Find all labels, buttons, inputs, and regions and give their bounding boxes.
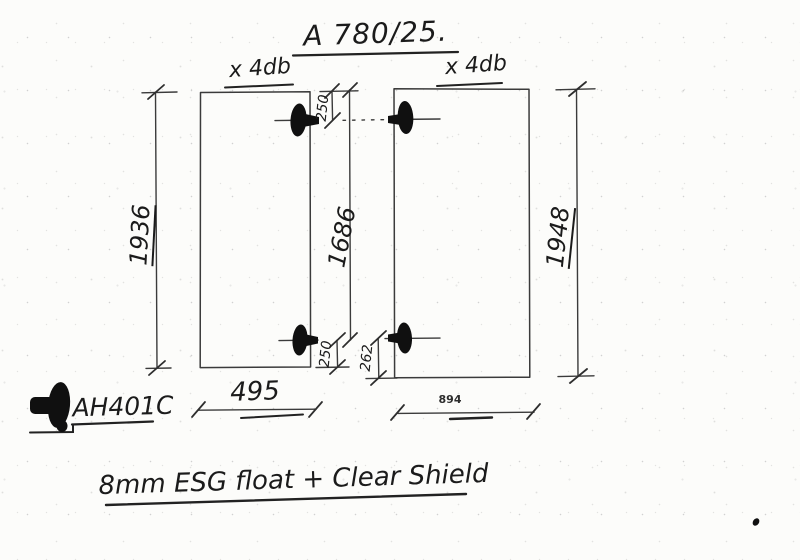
fitting-code-label: AH401C [68,389,179,424]
ext-stub [558,376,594,377]
dim-left-hole-bottom-offset: 250 [308,328,343,381]
dim-right-hole-bottom-offset: 262 [349,332,384,385]
ink-speck [751,517,761,527]
left-panel-qty-label: x 4db [217,51,303,87]
point-fixing-right-bottom-icon [388,322,413,354]
drawing-title: A 780/25. [287,14,463,54]
point-fixing-right-top-icon [388,101,414,135]
dim-right-panel-height: 1948 [532,193,585,281]
dim-894-underline [450,418,492,420]
tick [527,404,540,419]
right-panel-outline [394,89,530,378]
right-panel-qty-label: x 4db [433,48,519,84]
dim-line-894 [398,412,534,413]
qty-right-underline [437,83,502,86]
fitting-legend-icon [30,381,72,432]
dim-495-underline [241,415,303,419]
dim-right-panel-width: 894 [415,392,485,406]
ext-stub [142,92,177,93]
dim-hole-top-offset: 250 [305,82,340,135]
dim-left-panel-height: 1936 [116,192,164,278]
tick [391,405,404,420]
dim-left-panel-width: 495 [199,374,310,410]
scanned-drawing-paper: A 780/25. x 4db x 4db 1936 1686 1948 250… [0,0,800,560]
